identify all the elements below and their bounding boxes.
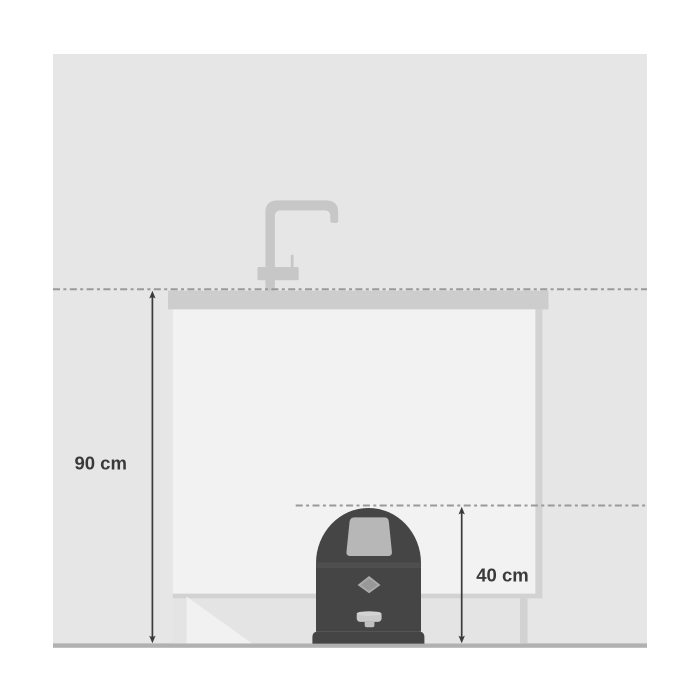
svg-text:40 cm: 40 cm bbox=[476, 565, 528, 586]
svg-text:90 cm: 90 cm bbox=[74, 453, 126, 474]
